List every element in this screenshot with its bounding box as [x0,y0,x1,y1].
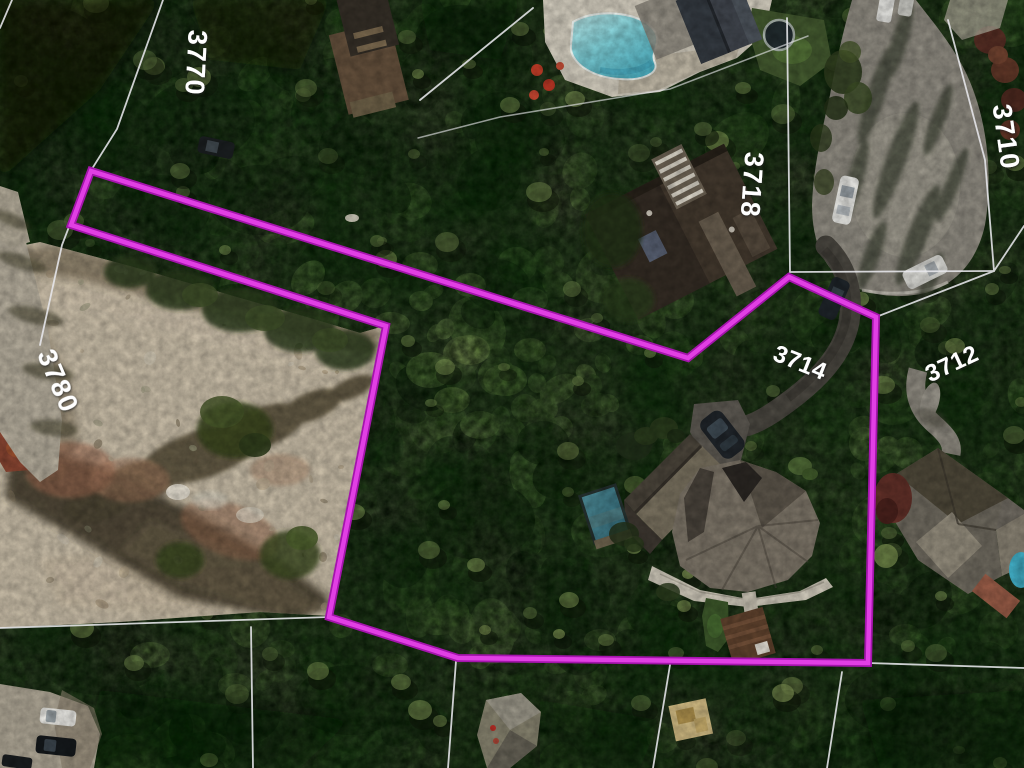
svg-text:3718: 3718 [735,151,770,219]
svg-text:3770: 3770 [179,29,212,97]
